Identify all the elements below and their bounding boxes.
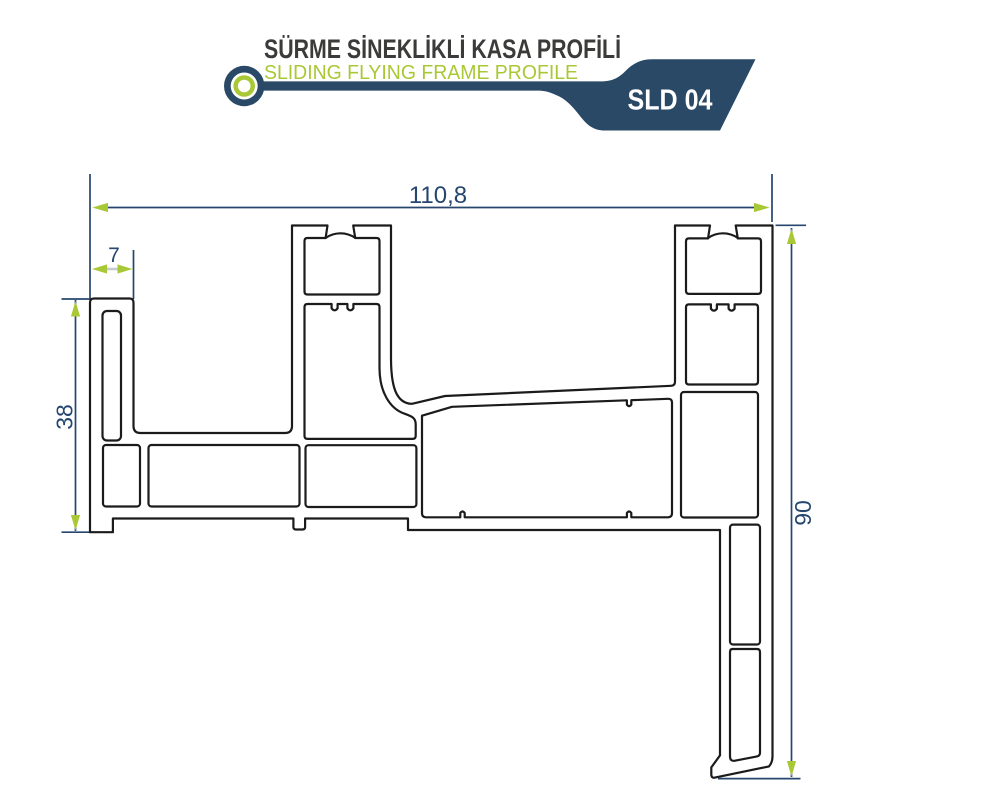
svg-text:110,8: 110,8 bbox=[409, 182, 467, 209]
svg-text:SLIDING FLYING FRAME PROFILE: SLIDING FLYING FRAME PROFILE bbox=[264, 61, 578, 84]
svg-text:SÜRME SİNEKLİKLİ KASA PROFİLİ: SÜRME SİNEKLİKLİ KASA PROFİLİ bbox=[264, 34, 621, 64]
svg-text:38: 38 bbox=[52, 404, 78, 430]
svg-text:SLD 04: SLD 04 bbox=[628, 85, 713, 117]
svg-text:7: 7 bbox=[108, 244, 120, 267]
svg-text:90: 90 bbox=[790, 500, 816, 526]
